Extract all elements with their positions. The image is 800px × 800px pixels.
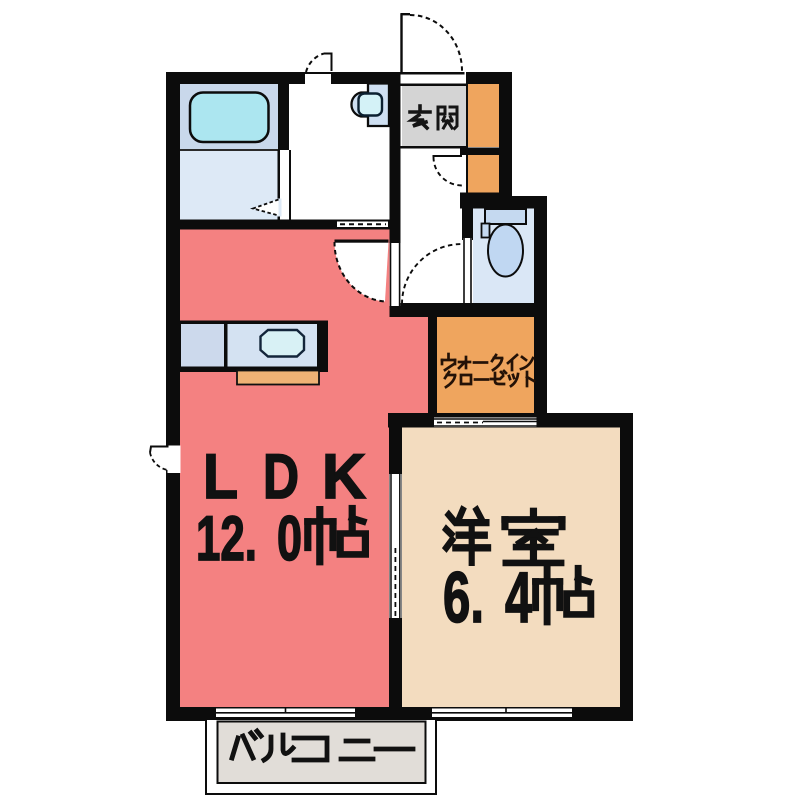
svg-text:4: 4 bbox=[505, 559, 532, 638]
svg-text:D: D bbox=[263, 442, 299, 512]
svg-text:12.: 12. bbox=[196, 504, 257, 574]
svg-text:L: L bbox=[203, 442, 238, 512]
svg-text:6.: 6. bbox=[443, 559, 484, 638]
svg-text:0: 0 bbox=[277, 504, 302, 574]
svg-text:K: K bbox=[322, 442, 366, 512]
